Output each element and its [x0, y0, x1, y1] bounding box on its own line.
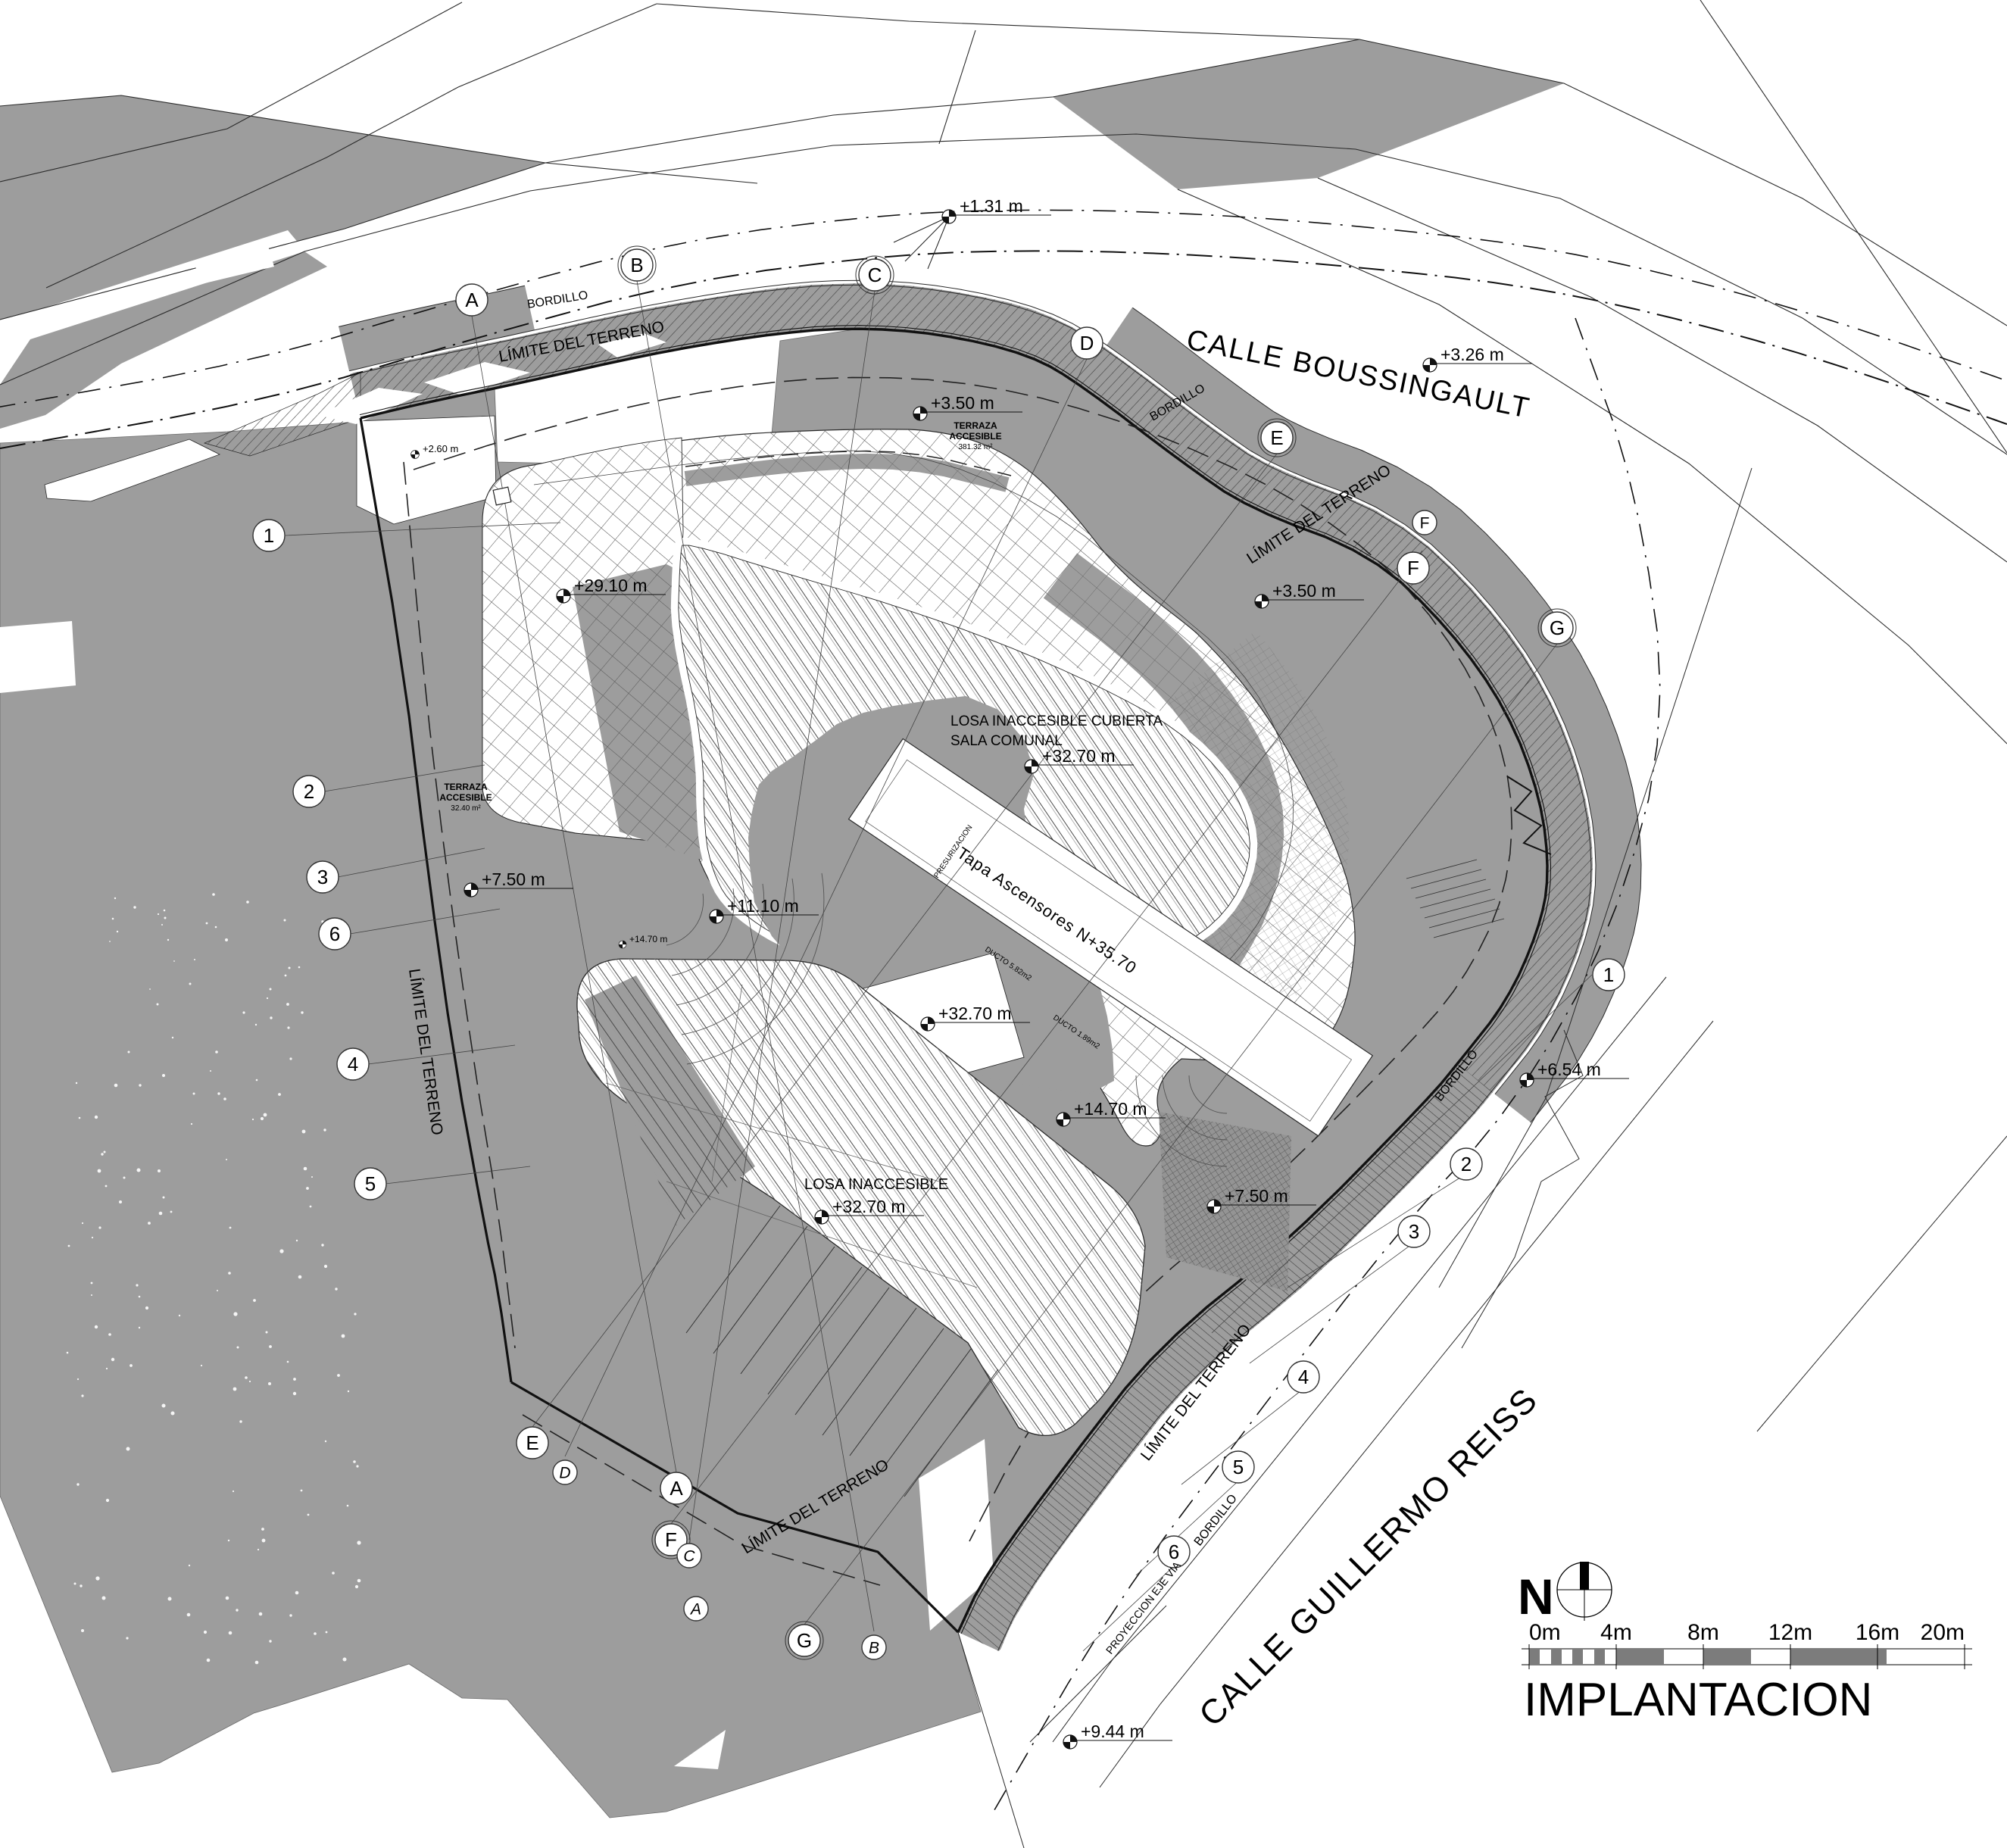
svg-text:1: 1	[264, 524, 274, 547]
svg-text:ACCESIBLE: ACCESIBLE	[949, 431, 1001, 442]
svg-text:2: 2	[304, 780, 314, 803]
svg-text:4: 4	[1298, 1366, 1309, 1388]
svg-text:+3.26 m: +3.26 m	[1440, 345, 1504, 364]
svg-text:D: D	[1080, 332, 1094, 354]
svg-text:12m: 12m	[1768, 1620, 1812, 1645]
svg-text:TERRAZA: TERRAZA	[444, 782, 488, 792]
svg-text:F: F	[1420, 514, 1430, 532]
svg-text:B: B	[630, 254, 643, 276]
svg-text:+7.50 m: +7.50 m	[1225, 1186, 1288, 1206]
svg-text:A: A	[465, 289, 479, 311]
svg-text:F: F	[665, 1528, 677, 1551]
svg-text:C: C	[868, 264, 882, 286]
svg-text:+3.50 m: +3.50 m	[931, 393, 994, 413]
svg-text:D: D	[559, 1464, 570, 1481]
svg-text:+14.70 m: +14.70 m	[629, 934, 667, 944]
svg-text:G: G	[797, 1629, 812, 1652]
svg-text:LOSA INACCESIBLE: LOSA INACCESIBLE	[804, 1176, 948, 1193]
svg-text:+3.50 m: +3.50 m	[1272, 581, 1336, 601]
svg-text:+32.70 m: +32.70 m	[832, 1197, 906, 1216]
svg-text:0m: 0m	[1529, 1620, 1561, 1645]
svg-text:+32.70 m: +32.70 m	[938, 1004, 1012, 1023]
svg-text:E: E	[526, 1431, 538, 1454]
svg-text:ACCESIBLE: ACCESIBLE	[439, 792, 492, 803]
svg-text:20m: 20m	[1921, 1620, 1965, 1645]
svg-text:LOSA INACCESIBLE CUBIERTA: LOSA INACCESIBLE CUBIERTA	[950, 713, 1163, 729]
svg-text:5: 5	[365, 1172, 376, 1195]
svg-text:F: F	[1407, 557, 1419, 579]
svg-text:IMPLANTACION: IMPLANTACION	[1524, 1674, 1872, 1726]
svg-text:8m: 8m	[1687, 1620, 1719, 1645]
svg-text:+6.54 m: +6.54 m	[1537, 1060, 1601, 1079]
svg-text:N: N	[1518, 1569, 1554, 1625]
svg-text:+1.31 m: +1.31 m	[960, 196, 1023, 216]
svg-text:TERRAZA: TERRAZA	[954, 420, 997, 431]
svg-text:C: C	[683, 1547, 695, 1565]
svg-text:4m: 4m	[1600, 1620, 1632, 1645]
svg-text:3: 3	[1409, 1220, 1419, 1243]
svg-text:32.40 m²: 32.40 m²	[451, 804, 481, 813]
svg-text:SALA COMUNAL: SALA COMUNAL	[950, 733, 1063, 749]
svg-text:B: B	[869, 1639, 879, 1656]
svg-text:E: E	[1270, 426, 1283, 449]
svg-text:2: 2	[1461, 1153, 1472, 1175]
svg-text:A: A	[689, 1600, 701, 1618]
svg-text:A: A	[670, 1477, 683, 1500]
svg-text:+7.50 m: +7.50 m	[482, 869, 545, 889]
svg-text:+2.60 m: +2.60 m	[423, 443, 458, 454]
svg-text:+29.10 m: +29.10 m	[574, 576, 648, 595]
svg-text:G: G	[1550, 617, 1565, 639]
svg-text:4: 4	[348, 1053, 358, 1075]
svg-text:+14.70 m: +14.70 m	[1074, 1099, 1147, 1119]
svg-text:381.32 m²: 381.32 m²	[958, 443, 993, 451]
svg-text:+11.10 m: +11.10 m	[727, 896, 799, 916]
svg-text:+9.44 m: +9.44 m	[1081, 1722, 1144, 1741]
svg-text:3: 3	[317, 866, 328, 888]
svg-text:5: 5	[1233, 1456, 1244, 1478]
svg-text:6: 6	[329, 922, 340, 945]
svg-text:16m: 16m	[1856, 1620, 1899, 1645]
svg-text:1: 1	[1603, 963, 1614, 986]
